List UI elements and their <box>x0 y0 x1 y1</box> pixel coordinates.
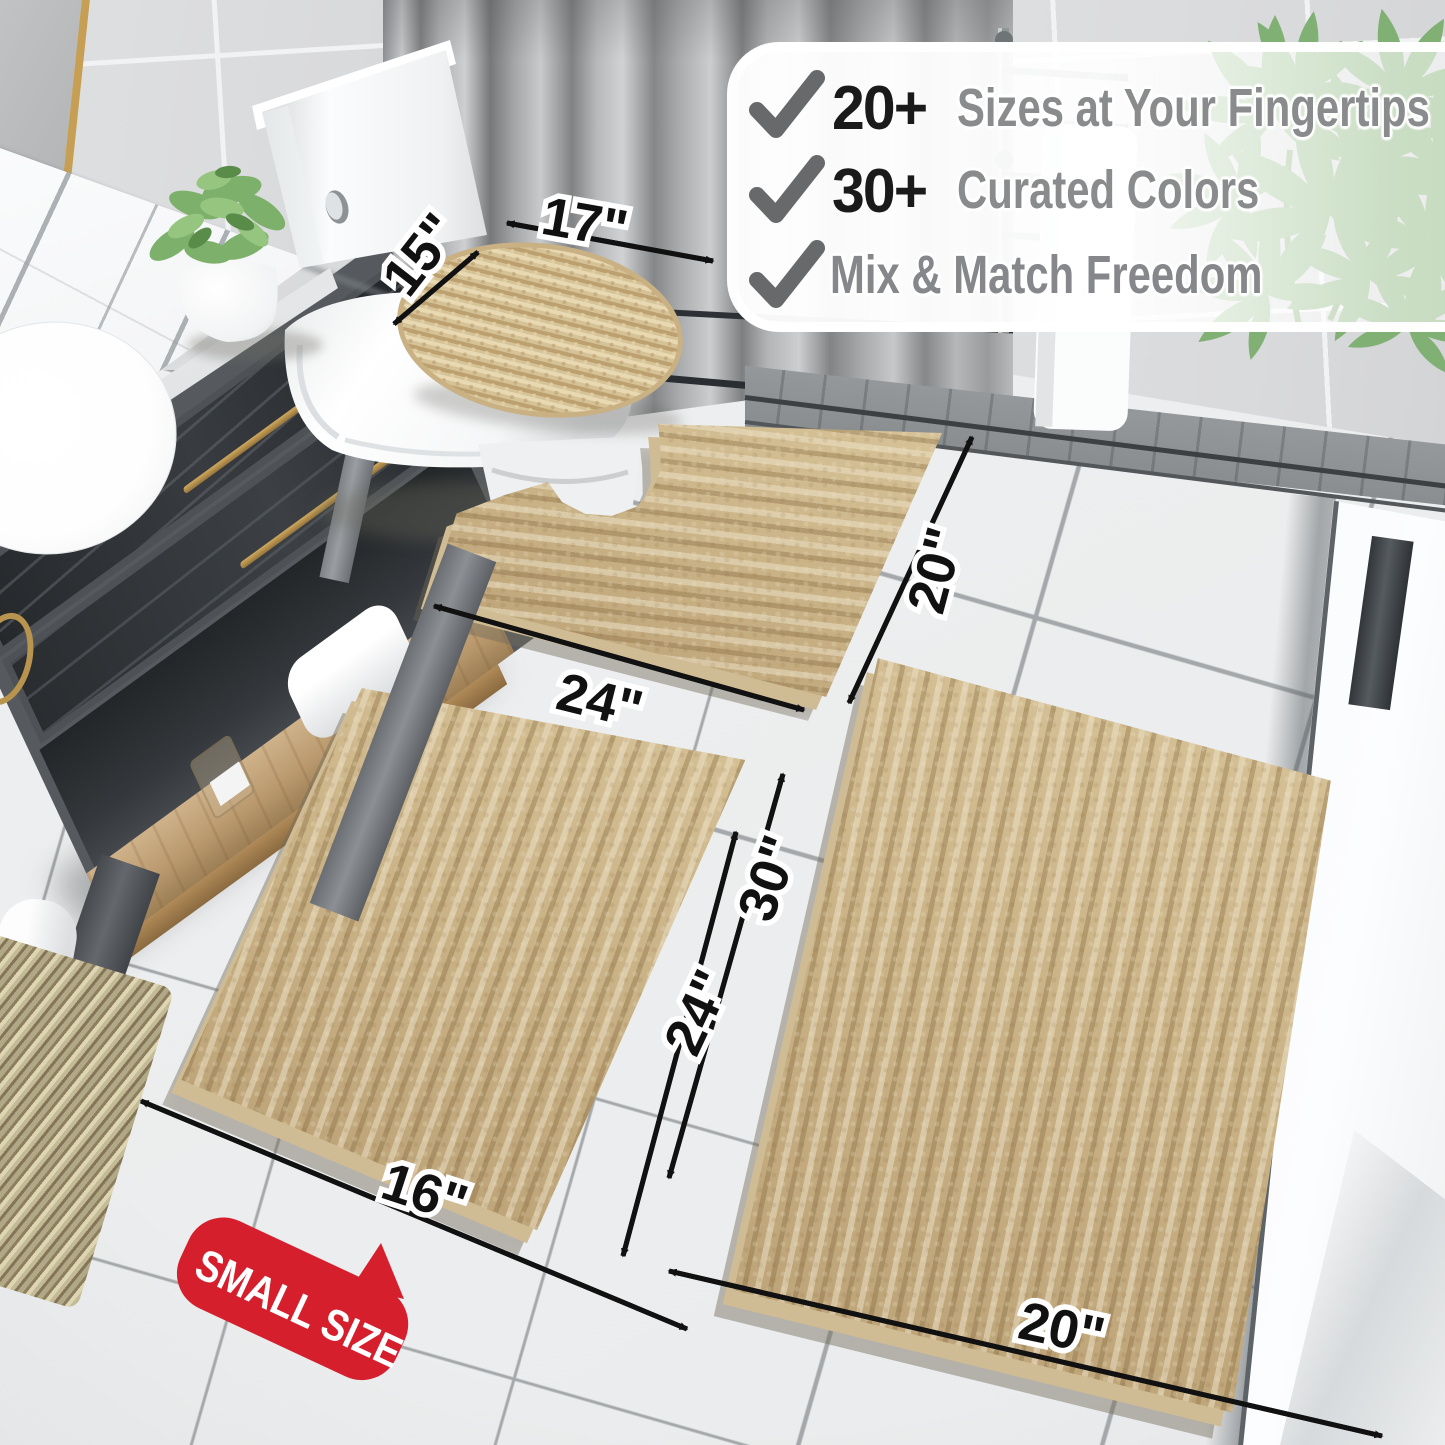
svg-text:16": 16" <box>375 1151 475 1235</box>
svg-text:15": 15" <box>371 202 471 306</box>
svg-text:24": 24" <box>653 961 744 1064</box>
svg-text:17": 17" <box>537 186 632 260</box>
svg-text:20": 20" <box>896 521 976 619</box>
svg-text:24": 24" <box>551 661 649 740</box>
svg-text:30": 30" <box>726 828 812 929</box>
